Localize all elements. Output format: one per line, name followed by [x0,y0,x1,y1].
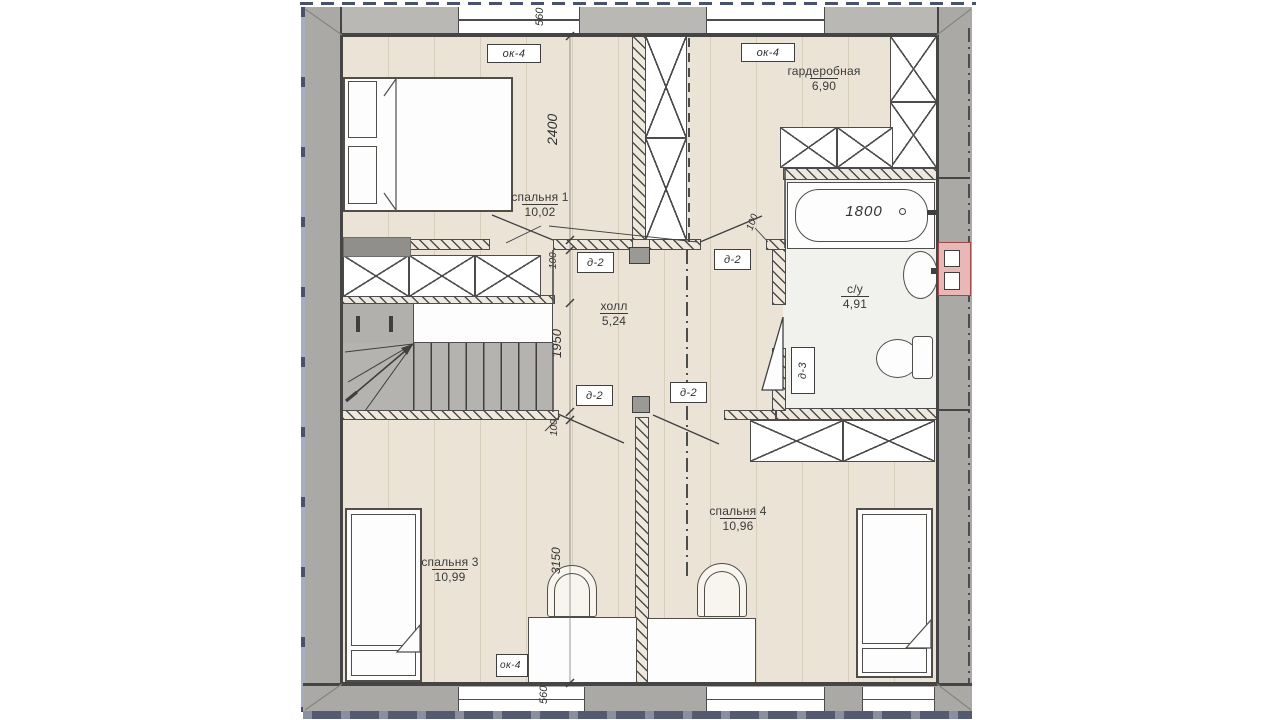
wall-hall-top [553,239,633,250]
wardrobe-room-cell [837,127,893,168]
dim-gap-bottom: 100 [549,413,562,442]
wardrobe-room-cell [780,127,837,168]
dresser [343,237,411,257]
wardrobe-right-cell [890,102,937,168]
room-label-bedroom4: спальня 4 10,96 [700,504,776,533]
room-name: холл [590,299,638,313]
closet-above-stairs-cell [343,255,409,297]
dim-stairs: 1950 [549,311,566,377]
stair-jamb-mark [356,316,360,332]
bed-footboard [862,648,927,673]
window-tag: ок-4 [487,44,541,63]
door-stop-block-bottom [632,396,650,413]
wall-bathroom-left [772,249,786,305]
closet-above-stairs-cell [409,255,475,297]
door-tag: д-2 [714,249,751,270]
window-top-wardrobe [706,7,825,33]
exterior-wall-top [303,7,972,36]
stair-landing [413,303,553,343]
bed-mattress [862,514,927,644]
room-label-wardrobe: гардеробная 6,90 [776,64,872,93]
window-frame-line [707,699,824,700]
bath-door-tag-text: д-3 [797,362,809,379]
dashed-line-center-column [688,38,690,246]
roof-edge-top-line [300,2,976,5]
window-tag: ок-4 [496,654,528,677]
toilet-tank [912,336,933,379]
wardrobe-bedroom4-cell [843,420,935,462]
window-frame-line [863,699,934,700]
window-tag: ок-4 [741,43,795,62]
wardrobe-bedroom4-cell [750,420,843,462]
door-tag: д-2 [577,252,614,273]
exterior-wall-right [937,7,972,712]
room-name: гардеробная [776,64,872,78]
bathtub-length-dim: 1800 [828,203,900,220]
room-label-bedroom1: спальня 1 10,02 [502,190,578,219]
bathtub-drain [899,208,906,215]
roof-edge-right-line [968,28,970,712]
desk [528,617,637,683]
room-area: 10,96 [720,518,755,533]
bath-door-tag: д-3 [791,347,815,394]
room-label-hall: холл 5,24 [590,299,638,328]
room-area: 6,90 [810,78,838,93]
roof-edge-bottom-band [303,711,972,719]
room-area: 4,91 [841,296,869,311]
wall-bathroom-left [772,348,786,411]
room-area: 5,24 [600,313,628,328]
room-area: 10,02 [522,204,557,219]
closet-above-stairs-cell [475,255,541,297]
stair-treads [413,343,553,412]
wall-center-column [632,36,646,240]
dim-bedroom1-depth: 2400 [544,95,562,163]
bed-mattress [351,514,416,646]
window-bottom-bedroom3 [458,687,585,711]
stair-upper-block [343,303,413,343]
door-tag: д-2 [576,385,613,406]
desk [647,618,756,683]
wall-bathroom-top [783,168,937,180]
roof-edge-left-line [301,7,305,712]
room-name: спальня 1 [502,190,578,204]
window-bottom-bedroom4b [862,687,935,711]
window-frame-line [459,699,584,700]
chair-inner [704,571,740,617]
axis-line-hall [686,250,688,578]
stair-jamb-mark [389,316,393,332]
wall-hall-bottom [724,410,776,420]
exterior-wall-left [303,7,342,712]
bathtub-tap [927,210,936,215]
wardrobe-center-cell [645,138,687,240]
room-name: спальня 4 [700,504,776,518]
room-label-bathroom: с/у 4,91 [835,282,875,311]
room-area: 10,99 [432,569,467,584]
sink [903,251,938,299]
dim-bedroom3-depth: 3150 [549,537,565,585]
stair-winder [343,343,413,412]
floor-plan: 1800 ок-4 ок-4 ок-4 д-2 д-2 д-2 д-2 д-3 … [0,0,1280,720]
window-frame-line [459,19,579,20]
door-stop-block-top [629,247,650,264]
wall-hall-bottom [342,410,559,420]
dim-gap-top: 100 [548,247,561,275]
room-name: с/у [835,282,875,296]
wall-bathroom-bottom [776,408,937,420]
pillow [348,81,377,138]
window-frame-line [707,19,824,20]
vent-duct [944,250,960,267]
door-tag: д-2 [670,382,707,403]
room-name: спальня 3 [414,555,486,569]
window-top-bedroom1 [458,7,580,33]
pillow [348,146,377,204]
wardrobe-center-cell [645,36,687,138]
vent-duct [944,272,960,290]
bed-footboard [351,650,416,676]
room-label-bedroom3: спальня 3 10,99 [414,555,486,584]
wall-hall-top [649,239,701,250]
dim-window-bottom: 560 [538,679,554,711]
window-bottom-bedroom4 [706,687,825,711]
dim-window-top: 560 [534,1,550,32]
wardrobe-right-cell [890,36,937,102]
